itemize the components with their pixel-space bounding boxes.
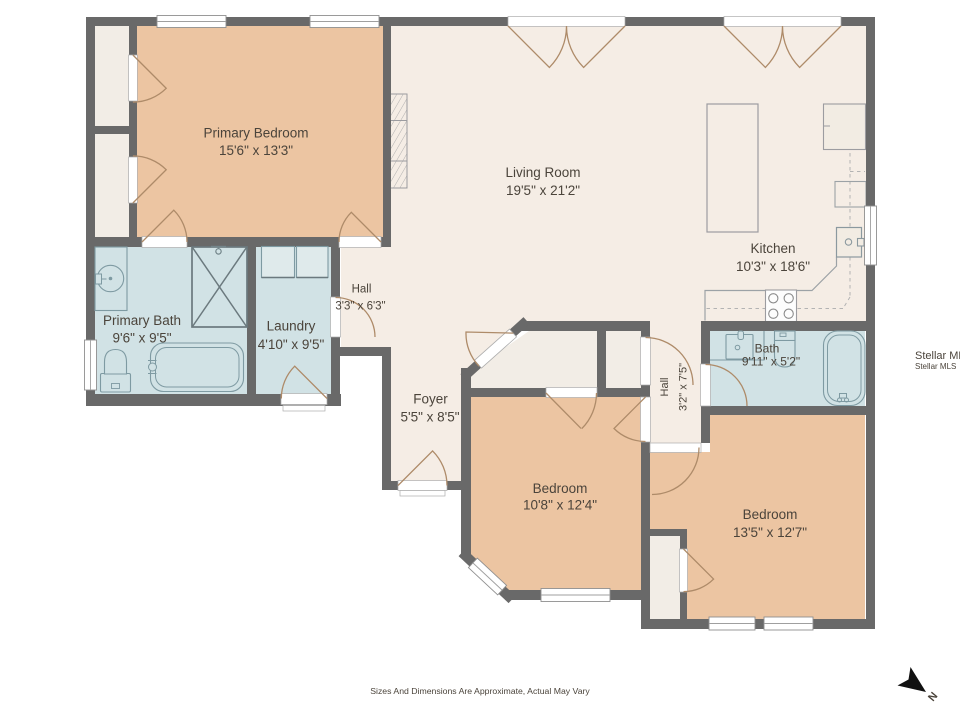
svg-text:5'5" x 8'5": 5'5" x 8'5" [400, 409, 459, 424]
svg-text:3'3" x 6'3": 3'3" x 6'3" [335, 301, 385, 313]
svg-text:Living Room: Living Room [505, 165, 580, 180]
svg-text:10'3" x 18'6": 10'3" x 18'6" [736, 259, 810, 274]
svg-text:9'6" x 9'5": 9'6" x 9'5" [112, 330, 171, 345]
svg-text:Hall: Hall [659, 378, 671, 397]
svg-text:19'5" x 21'2": 19'5" x 21'2" [506, 183, 580, 198]
svg-text:Bedroom: Bedroom [743, 507, 798, 522]
svg-text:Foyer: Foyer [413, 391, 448, 406]
svg-text:Laundry: Laundry [267, 318, 316, 333]
svg-text:Primary Bedroom: Primary Bedroom [203, 125, 308, 140]
svg-text:10'8" x 12'4": 10'8" x 12'4" [523, 497, 597, 512]
svg-text:Stellar MLS: Stellar MLS [915, 362, 956, 371]
svg-text:9'11" x 5'2": 9'11" x 5'2" [742, 354, 800, 368]
svg-text:Bedroom: Bedroom [533, 481, 588, 496]
svg-text:Kitchen: Kitchen [750, 241, 795, 256]
svg-text:4'10" x 9'5": 4'10" x 9'5" [258, 337, 325, 352]
svg-text:15'6" x 13'3": 15'6" x 13'3" [219, 143, 293, 158]
svg-text:Hall: Hall [352, 284, 372, 296]
svg-text:Sizes And Dimensions Are Appro: Sizes And Dimensions Are Approximate, Ac… [370, 686, 590, 696]
svg-text:13'5" x 12'7": 13'5" x 12'7" [733, 525, 807, 540]
svg-text:Stellar MLS: Stellar MLS [915, 350, 960, 362]
svg-text:Primary Bath: Primary Bath [103, 313, 181, 328]
svg-text:3'2" x 7'5": 3'2" x 7'5" [678, 363, 690, 411]
svg-text:Bath: Bath [755, 341, 780, 355]
